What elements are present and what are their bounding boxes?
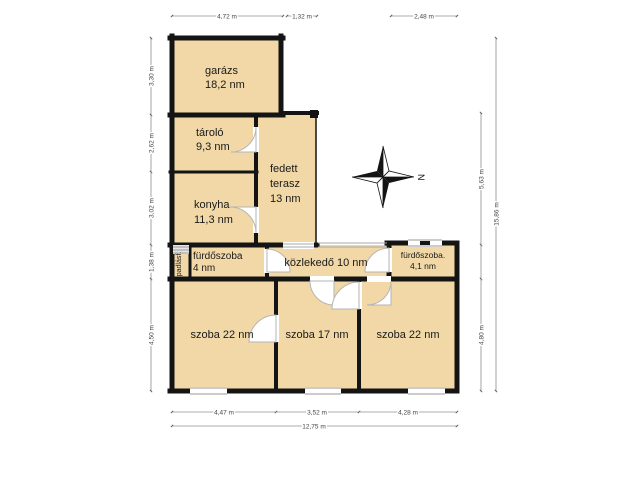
bedroom-middle-label: szoba 17 nm xyxy=(286,329,349,341)
dim-bottom-1: 4,47 m xyxy=(214,410,234,417)
dim-left-2: 2,62 m xyxy=(149,133,156,153)
compass-north-label: N xyxy=(416,174,426,181)
dim-left-5: 4,50 m xyxy=(149,325,156,345)
dim-top-3: 2,48 m xyxy=(414,14,434,21)
dim-left-4: 1,38 m xyxy=(149,252,156,272)
dim-right-inner-1: 5,63 m xyxy=(479,169,486,189)
bathroom-right-name: fürdőszoba. xyxy=(401,250,445,260)
dim-top-1: 4,72 m xyxy=(217,14,237,21)
dim-bottom-3: 4,28 m xyxy=(398,410,418,417)
dim-bottom-2: 3,52 m xyxy=(307,410,327,417)
garage-name: garázs xyxy=(205,65,239,77)
garage-area: 18,2 nm xyxy=(205,79,245,91)
floor-plan-drawing: garázs 18,2 nm tároló 9,3 nm fedett tera… xyxy=(0,0,640,480)
window-bathroom-right xyxy=(408,239,442,247)
hallway-label: közlekedő 10 nm xyxy=(284,257,367,269)
bathroom-left-area: 4 nm xyxy=(193,263,215,274)
floor-plan-canvas: garázs 18,2 nm tároló 9,3 nm fedett tera… xyxy=(0,0,640,480)
bathroom-left-name: fürdőszoba xyxy=(193,251,243,262)
dim-right-inner-2: 4,80 m xyxy=(479,325,486,345)
attic-stairs-name: padlásf. xyxy=(176,252,183,277)
window-bedroom-right xyxy=(408,387,445,395)
dim-top-2: 1,32 m xyxy=(292,14,312,21)
dim-left-1: 3,30 m xyxy=(149,66,156,86)
dim-left-3: 3,02 m xyxy=(149,198,156,218)
compass-icon: N xyxy=(352,146,426,208)
window-bedroom-middle xyxy=(305,387,341,395)
storage-area: 9,3 nm xyxy=(196,141,230,153)
terrace-name-1: fedett xyxy=(270,163,298,175)
bedroom-left-label: szoba 22 nm xyxy=(191,329,254,341)
terrace-area: 13 nm xyxy=(270,193,301,205)
window-bedroom-left xyxy=(190,387,227,395)
dim-right-total: 15,86 m xyxy=(494,202,501,226)
kitchen-name: konyha xyxy=(194,199,230,211)
terrace-corner-post xyxy=(310,110,318,118)
storage-name: tároló xyxy=(196,127,224,139)
bedroom-right-label: szoba 22 nm xyxy=(377,329,440,341)
terrace-name-2: terasz xyxy=(270,178,300,190)
bathroom-right-area: 4,1 nm xyxy=(410,261,436,271)
kitchen-area: 11,3 nm xyxy=(194,214,233,226)
dim-bottom-total: 12,75 m xyxy=(302,424,326,431)
